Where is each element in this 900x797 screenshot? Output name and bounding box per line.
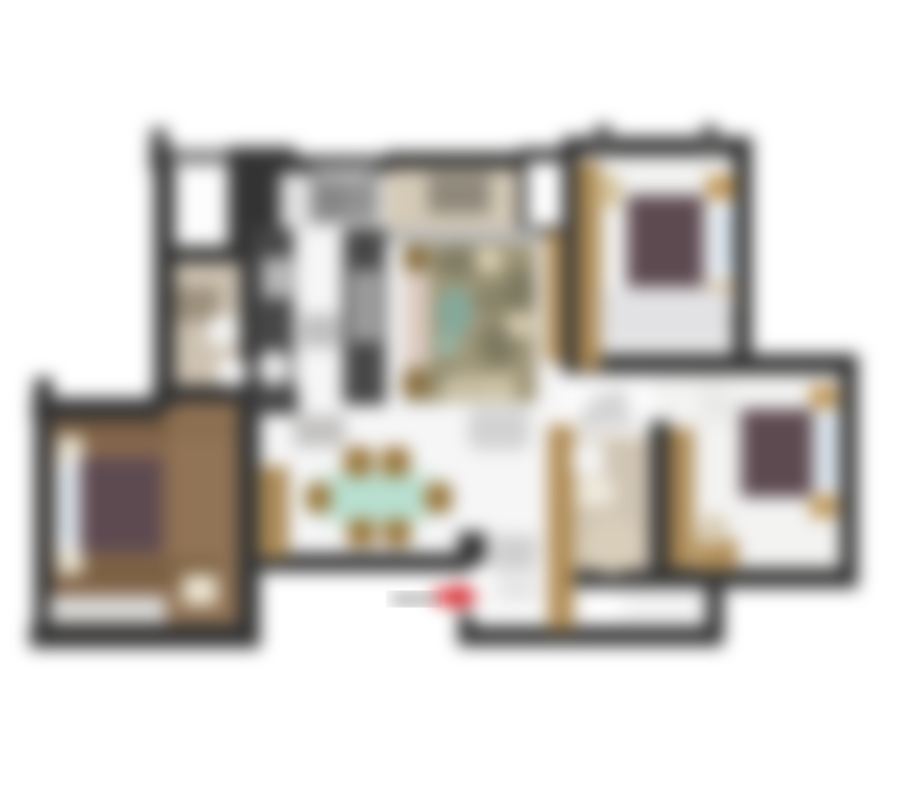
svg-text:way in: way in bbox=[392, 592, 436, 606]
